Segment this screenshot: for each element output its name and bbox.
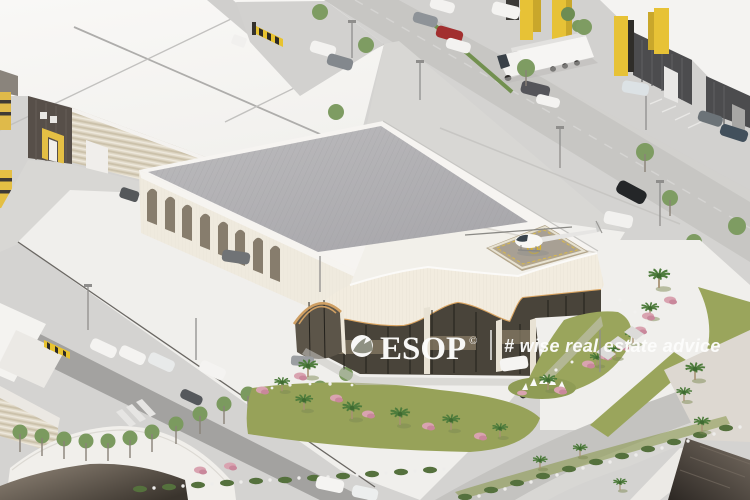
svg-text:©: © (469, 335, 477, 347)
svg-text:ESOP: ESOP (380, 331, 466, 367)
svg-text:# wise real estate advice: # wise real estate advice (504, 336, 721, 356)
